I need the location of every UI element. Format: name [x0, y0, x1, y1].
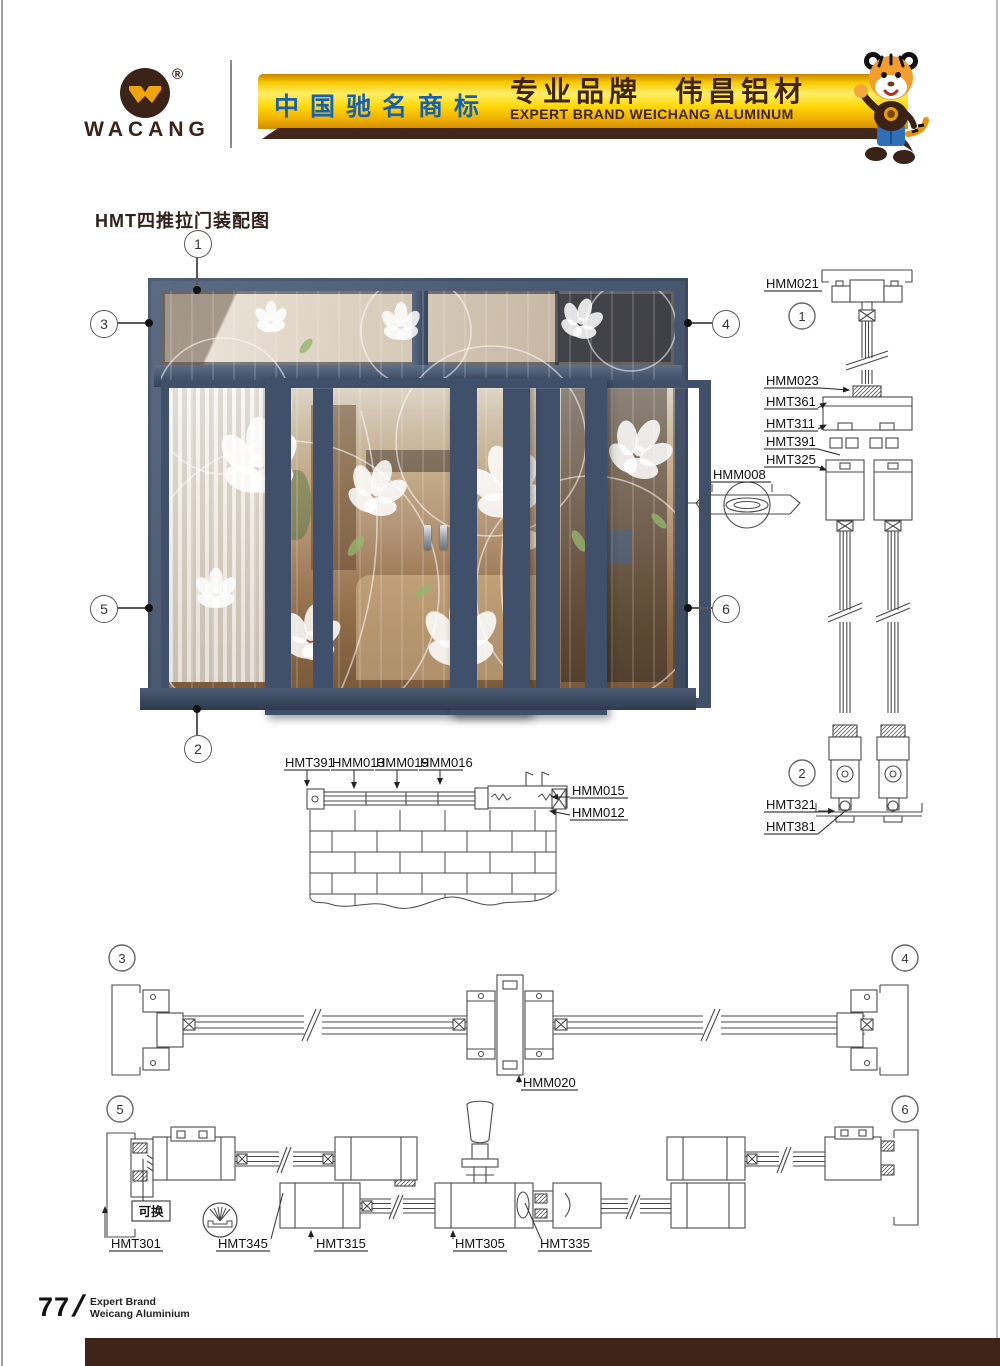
callout-4-line [690, 322, 712, 324]
door-sill [140, 688, 696, 710]
section-callout-1: 1 [798, 309, 805, 324]
logo-wordmark: WACANG [72, 118, 222, 142]
callout-1-line [196, 257, 198, 285]
label-hmt321: HMT321 [766, 797, 816, 812]
callout-2: 2 [184, 735, 212, 763]
callout-2-dot [193, 705, 201, 713]
en-slogan-text: EXPERT BRAND WEICHANG ALUMINUM [510, 107, 807, 122]
label-hmt335: HMT335 [540, 1236, 590, 1251]
label-hmt305: HMT305 [455, 1236, 505, 1251]
horizontal-section-top: 3 4 [95, 935, 925, 1095]
section-callout-3: 3 [118, 951, 125, 966]
horizontal-section-bottom: 5 6 [95, 1095, 925, 1270]
cn-slogan-text: 专业品牌 伟昌铝材 [510, 77, 807, 107]
footer-line-2: Weicang Aluminium [90, 1308, 190, 1320]
label-hmt345: HMT345 [218, 1236, 268, 1251]
wall-section-drawing: HMT391 HMM013 HMM019 HMM016 [280, 755, 630, 925]
callout-1-dot [193, 286, 201, 294]
label-hmt361: HMT361 [766, 394, 816, 409]
banner-slogans: 专业品牌 伟昌铝材 EXPERT BRAND WEICHANG ALUMINUM [510, 77, 807, 122]
wacang-w-glyph [120, 68, 170, 118]
door-handle-right [440, 525, 447, 549]
label-hmt301: HMT301 [111, 1236, 161, 1251]
callout-3-line [117, 322, 146, 324]
callout-6-line [690, 607, 712, 609]
catalog-page: ® WACANG 中国驰名商标 专业品牌 伟昌铝材 EXPERT BRAND W… [0, 0, 1000, 1366]
label-hmt391: HMT391 [766, 434, 816, 449]
callout-6-dot [684, 604, 692, 612]
section-callout-2: 2 [798, 766, 805, 781]
footer-brand-lines: Expert Brand Weicang Aluminium [90, 1296, 190, 1320]
wacang-logo-icon [120, 68, 170, 118]
callout-1: 1 [184, 230, 212, 258]
label-hmm015: HMM015 [572, 783, 625, 798]
label-hmt325: HMT325 [766, 452, 816, 467]
label-hmm023: HMM023 [766, 373, 819, 388]
page-edge-left [1, 0, 3, 1366]
footer-line-1: Expert Brand [90, 1296, 190, 1308]
callout-5: 5 [90, 595, 118, 623]
page-title: HMT四推拉门装配图 [95, 207, 270, 233]
label-hmm012: HMM012 [572, 805, 625, 820]
callout-4-dot [684, 319, 692, 327]
page-number: 77 [38, 1292, 70, 1323]
label-replaceable: 可换 [138, 1204, 164, 1219]
callout-3-dot [145, 319, 153, 327]
section-callout-6: 6 [901, 1102, 908, 1117]
door-render [148, 278, 688, 710]
header-divider [230, 60, 232, 148]
page-edge-right [996, 0, 998, 1366]
callout-5-dot [145, 604, 153, 612]
label-hmm020: HMM020 [523, 1075, 576, 1090]
footer-bar [85, 1338, 1000, 1366]
label-hmt391-wall: HMT391 [285, 755, 335, 770]
door-panel-3 [450, 378, 607, 715]
callout-4: 4 [712, 310, 740, 338]
brand-banner: 中国驰名商标 专业品牌 伟昌铝材 EXPERT BRAND WEICHANG A… [258, 74, 908, 129]
label-hmt315: HMT315 [316, 1236, 366, 1251]
callout-2-line [196, 712, 198, 735]
label-hmt381: HMT381 [766, 819, 816, 834]
section-callout-4: 4 [901, 951, 908, 966]
section-callout-5: 5 [116, 1102, 123, 1117]
vertical-section-drawing: HMM021 1 HMM023 HMT361 HMT311 HMT391 HMT… [750, 258, 945, 858]
banner-ribbon [258, 126, 923, 158]
callout-6: 6 [712, 595, 740, 623]
cn-trademark-text: 中国驰名商标 [274, 87, 490, 123]
label-hmm021: HMM021 [766, 276, 819, 291]
tiger-mascot-icon [846, 46, 938, 166]
callout-3: 3 [90, 310, 118, 338]
callout-5-line [117, 607, 146, 609]
page-number-slash: / [68, 1290, 87, 1324]
label-hmt311: HMT311 [766, 416, 815, 431]
registered-mark: ® [172, 66, 183, 83]
label-hmm016: HMM016 [420, 755, 473, 770]
door-handle-left [424, 525, 431, 549]
